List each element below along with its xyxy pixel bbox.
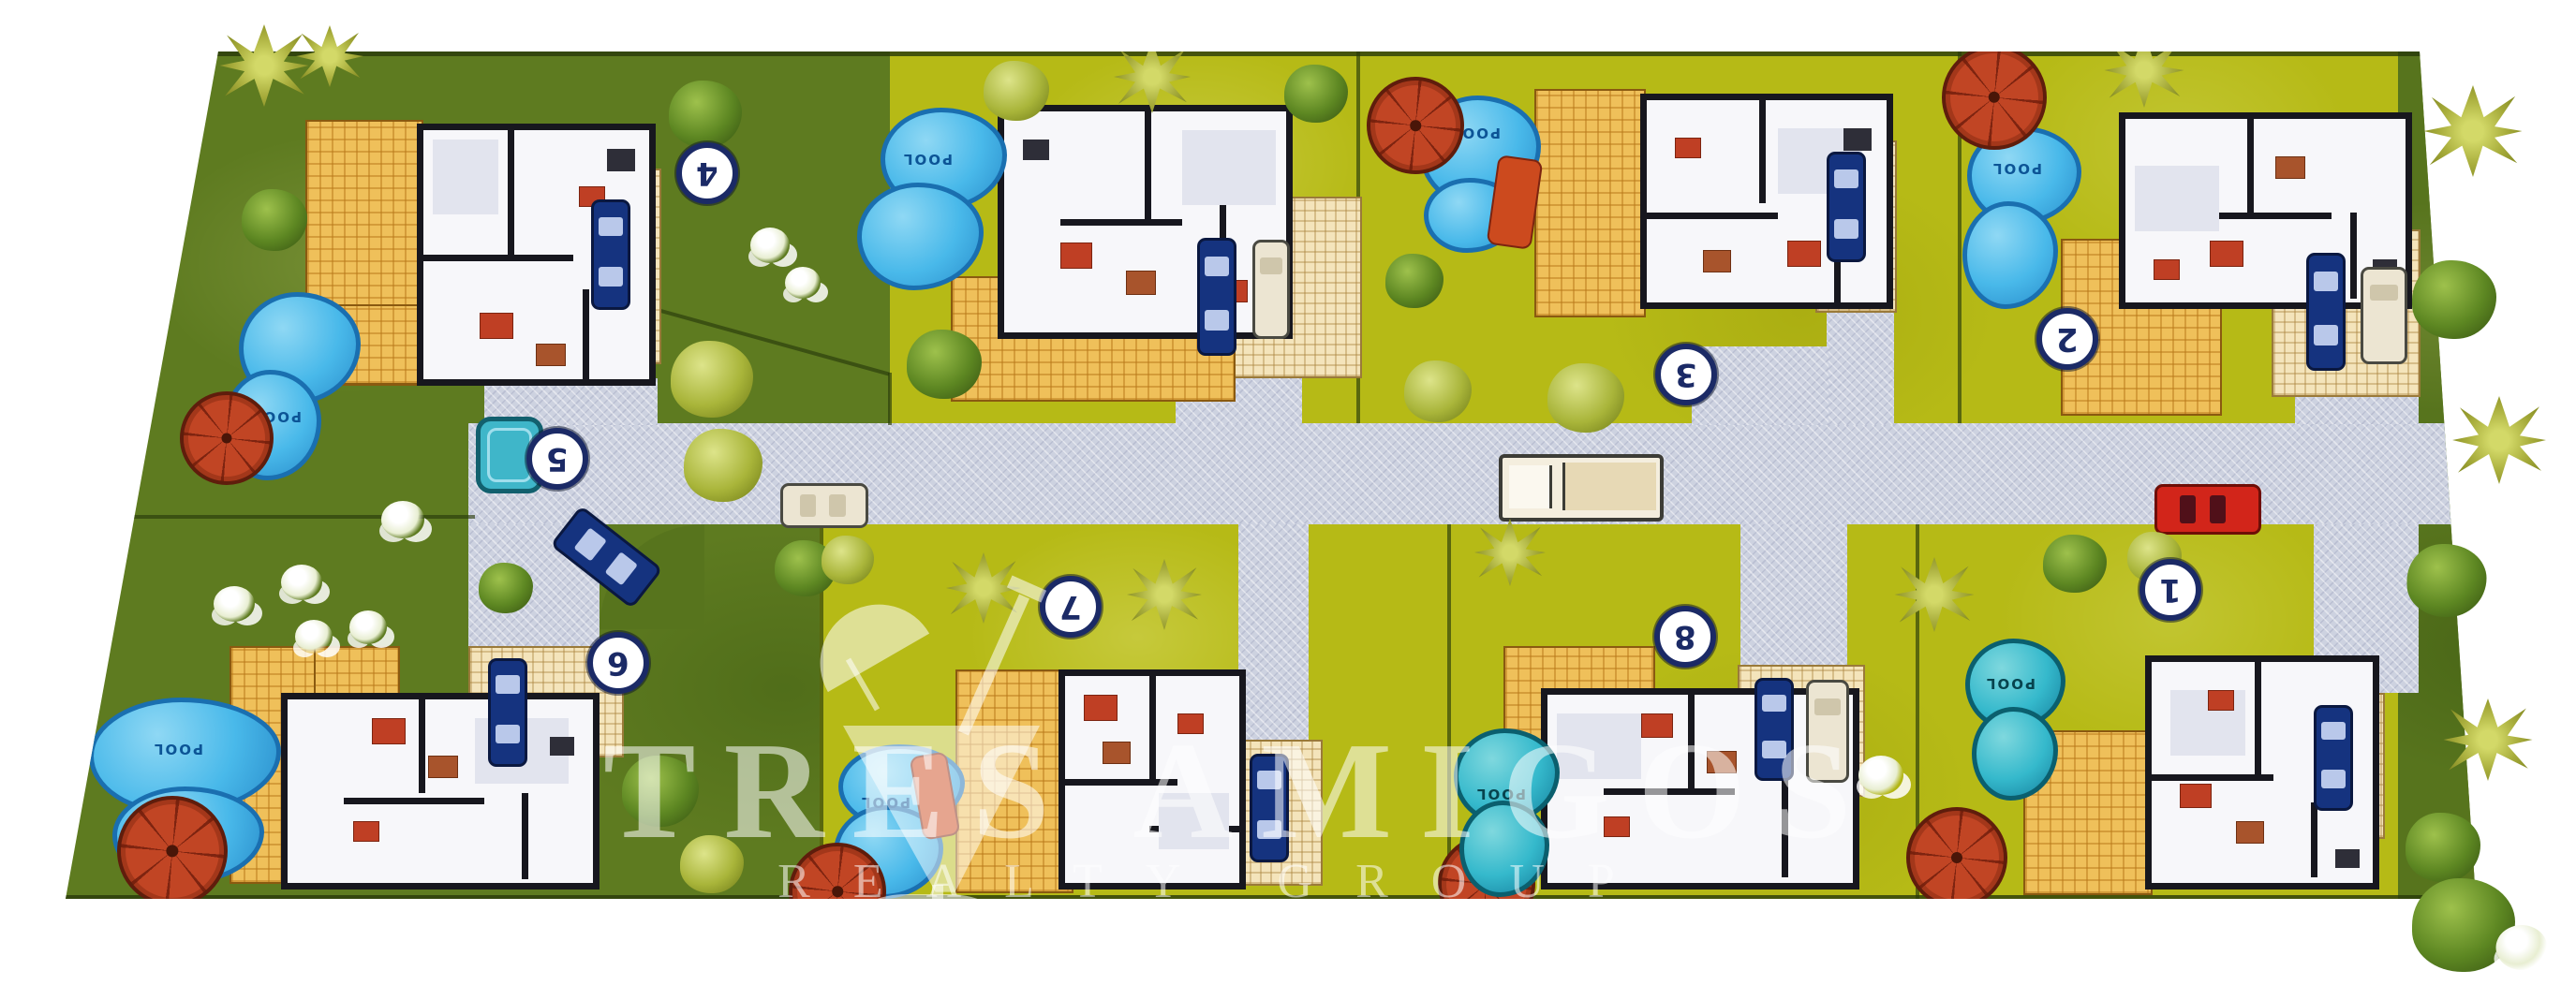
lot-marker-number: 5 (546, 443, 569, 475)
car-icon (591, 199, 630, 310)
house-floorplan (281, 693, 600, 889)
furniture (2208, 690, 2234, 711)
tree-icon (684, 429, 762, 502)
tree-icon (1547, 363, 1624, 433)
flower-bush-icon (785, 267, 821, 299)
brand-name: TRES AMIGOS (581, 712, 1902, 871)
furniture (480, 313, 513, 339)
brand-subtitle: REALTY GROUP (656, 854, 1780, 909)
pool-label: POOL (1991, 160, 2042, 177)
patio-umbrella-icon (117, 796, 228, 906)
swimming-pool: POOL (1965, 639, 2064, 793)
flower-bush-icon (750, 228, 790, 263)
patio-umbrella-icon (180, 391, 274, 485)
site-plan: POOL (0, 0, 2576, 985)
furniture (607, 149, 635, 171)
interior-wall (1145, 111, 1151, 224)
car-icon (1252, 240, 1290, 339)
swimming-pool: POOL (1962, 126, 2075, 300)
lot-7-marker: 7 (1040, 576, 1102, 638)
palm-tree-icon (2424, 85, 2523, 177)
lot-marker-number: 1 (2159, 574, 2182, 606)
car-icon (488, 658, 527, 767)
interior-wall (583, 289, 589, 379)
furniture (2236, 821, 2264, 844)
furniture (536, 344, 566, 366)
house-lot1 (2019, 649, 2393, 902)
room-shading (2135, 166, 2219, 231)
tree-icon (1385, 254, 1443, 308)
tree-icon (822, 536, 874, 584)
car-icon (2361, 267, 2407, 364)
house-lot3 (1534, 89, 1895, 360)
furniture (428, 756, 458, 778)
furniture (2210, 241, 2243, 267)
pool-label: POOL (902, 151, 953, 168)
house-deck (1534, 89, 1646, 317)
furniture (353, 821, 379, 842)
interior-wall (1759, 100, 1766, 203)
tree-icon (242, 189, 307, 251)
furniture (1060, 243, 1092, 269)
lot-marker-number: 4 (696, 157, 718, 189)
tree-icon (2412, 260, 2496, 339)
interior-wall (2247, 119, 2254, 213)
pool-water (1972, 707, 2058, 801)
furniture (1126, 271, 1156, 295)
furniture (1675, 138, 1701, 158)
house-lot6 (229, 641, 623, 894)
lot-marker-number: 2 (2056, 323, 2079, 355)
room-shading (1182, 130, 1276, 205)
furniture (372, 718, 406, 744)
car-icon (1197, 238, 1236, 356)
interior-wall (1060, 219, 1182, 226)
pool-label: POOL (153, 741, 203, 757)
lot-2-marker: 2 (2036, 308, 2098, 370)
flower-bush-icon (295, 620, 333, 654)
furniture (2335, 849, 2360, 868)
tree-icon (119, 160, 177, 214)
furniture (550, 737, 574, 756)
house-floorplan (998, 105, 1293, 339)
interior-wall (522, 793, 528, 879)
furniture (2275, 156, 2305, 179)
furniture (1023, 140, 1049, 160)
lot-3-marker: 3 (1655, 344, 1717, 405)
tree-icon (671, 341, 753, 418)
house-lot2 (2061, 82, 2417, 412)
flower-bush-icon (349, 610, 387, 644)
palm-tree-icon (2452, 396, 2546, 484)
lot-6-marker: 6 (587, 632, 649, 694)
tree-icon (479, 563, 533, 613)
tree-icon (984, 61, 1049, 121)
interior-wall (2255, 662, 2261, 774)
patio-umbrella-icon (1367, 77, 1464, 174)
interior-wall (423, 255, 573, 261)
interior-wall (419, 699, 425, 793)
truck-cab (1509, 465, 1553, 508)
interior-wall (2350, 213, 2357, 299)
lot-1-marker: 1 (2139, 559, 2201, 621)
driveway-lot8 (1740, 524, 1847, 665)
flower-bush-icon (281, 565, 322, 600)
truck-box (1562, 463, 1656, 510)
furniture (2154, 259, 2180, 280)
lot-marker-number: 3 (1675, 359, 1697, 390)
furniture (1843, 128, 1872, 151)
patio-umbrella-icon (1942, 45, 2047, 150)
tree-icon (907, 330, 982, 399)
furniture (1703, 250, 1731, 272)
lot-marker-number: 7 (1059, 591, 1082, 623)
swimming-pool: POOL (857, 108, 998, 281)
pool-label: POOL (1985, 675, 2036, 692)
interior-wall (508, 130, 514, 261)
tree-icon (1284, 65, 1348, 123)
patio-umbrella-icon (1906, 807, 2007, 908)
tree-icon (669, 81, 742, 148)
interior-wall (344, 798, 484, 804)
interior-wall (1647, 213, 1778, 219)
pool-water (1962, 201, 2058, 309)
house-top-middle (951, 103, 1358, 398)
flower-bush-icon (214, 586, 255, 622)
truck-icon (1499, 454, 1664, 522)
flower-bush-icon (2496, 925, 2548, 970)
car-icon (2154, 484, 2261, 535)
lot-marker-number: 6 (607, 647, 629, 679)
tree-icon (2043, 535, 2107, 593)
car-icon (780, 483, 868, 528)
car-icon (2306, 253, 2346, 371)
flower-bush-icon (381, 501, 424, 538)
tree-icon (2407, 544, 2487, 617)
lot-marker-number: 8 (1674, 621, 1696, 653)
lot-4-marker: 4 (676, 142, 738, 204)
car-icon (2314, 705, 2353, 811)
interior-wall (2311, 802, 2317, 877)
hedge-line (888, 373, 892, 425)
lot-5-marker: 5 (526, 428, 588, 490)
spa-inner-ring (487, 428, 532, 482)
room-shading (433, 140, 498, 214)
lot-8-marker: 8 (1654, 606, 1716, 668)
interior-wall (2152, 774, 2273, 781)
pool-water (857, 183, 984, 290)
furniture (2180, 784, 2212, 808)
car-icon (1827, 152, 1866, 262)
tree-icon (1404, 360, 1472, 422)
furniture (1787, 241, 1821, 267)
tree-icon (2406, 813, 2480, 882)
